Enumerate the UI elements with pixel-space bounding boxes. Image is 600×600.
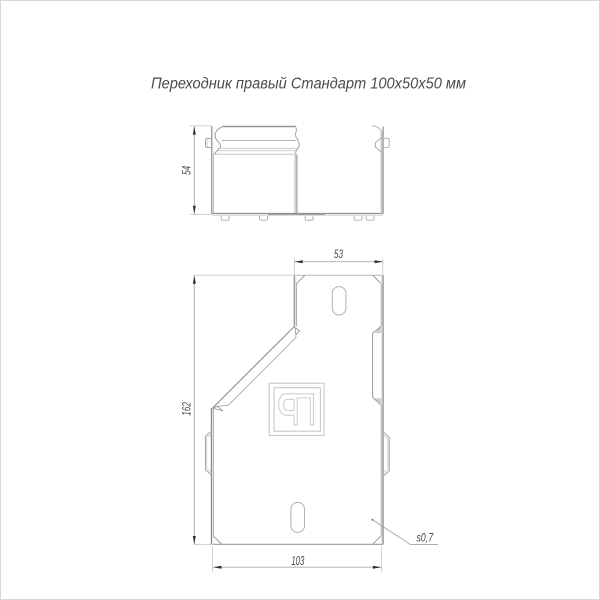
svg-text:162: 162 xyxy=(181,402,194,416)
svg-text:54: 54 xyxy=(181,166,194,175)
svg-text:Переходник правый Стандарт 100: Переходник правый Стандарт 100x50x50 мм xyxy=(151,76,466,93)
svg-text:103: 103 xyxy=(291,555,304,568)
svg-text:53: 53 xyxy=(334,249,344,262)
svg-text:s0,7: s0,7 xyxy=(416,533,434,545)
